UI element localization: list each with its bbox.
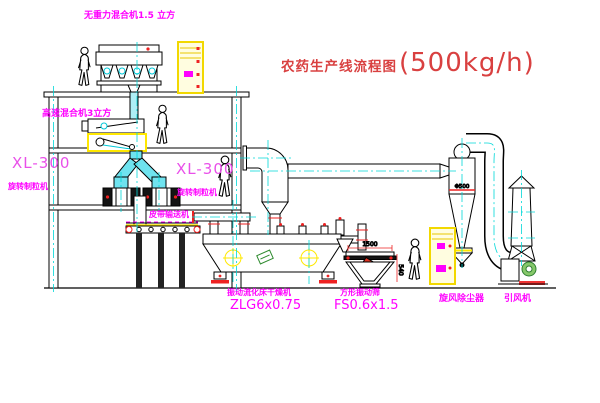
sieve-height-dim: 540 [397,264,404,276]
gravity-mixer [96,45,162,119]
dryer-feed-pipe [193,211,250,235]
control-cabinet-1 [178,42,203,93]
sieve-width-dim: 1500 [362,241,377,248]
high-speed-mixer [82,119,146,151]
worker-figure-3 [219,156,231,196]
induced-draft-fan [498,259,548,285]
vibrating-sieve: 1500 540 [344,241,404,287]
air-inlet-elbow [243,146,288,235]
worker-figure-4 [409,239,421,279]
worker-figure-2 [156,105,168,143]
granulator-right [143,188,180,206]
control-cabinet-2 [430,228,455,284]
diagram-title: 农药生产线流程图 (500kg/h) [281,48,535,78]
title-capacity: (500kg/h) [399,48,535,78]
worker-figure-1 [78,47,90,85]
cad-flow-diagram: 1500 540 Φ500 [0,0,600,403]
y-chute [114,151,166,189]
title-chinese: 农药生产线流程图 [281,55,397,75]
